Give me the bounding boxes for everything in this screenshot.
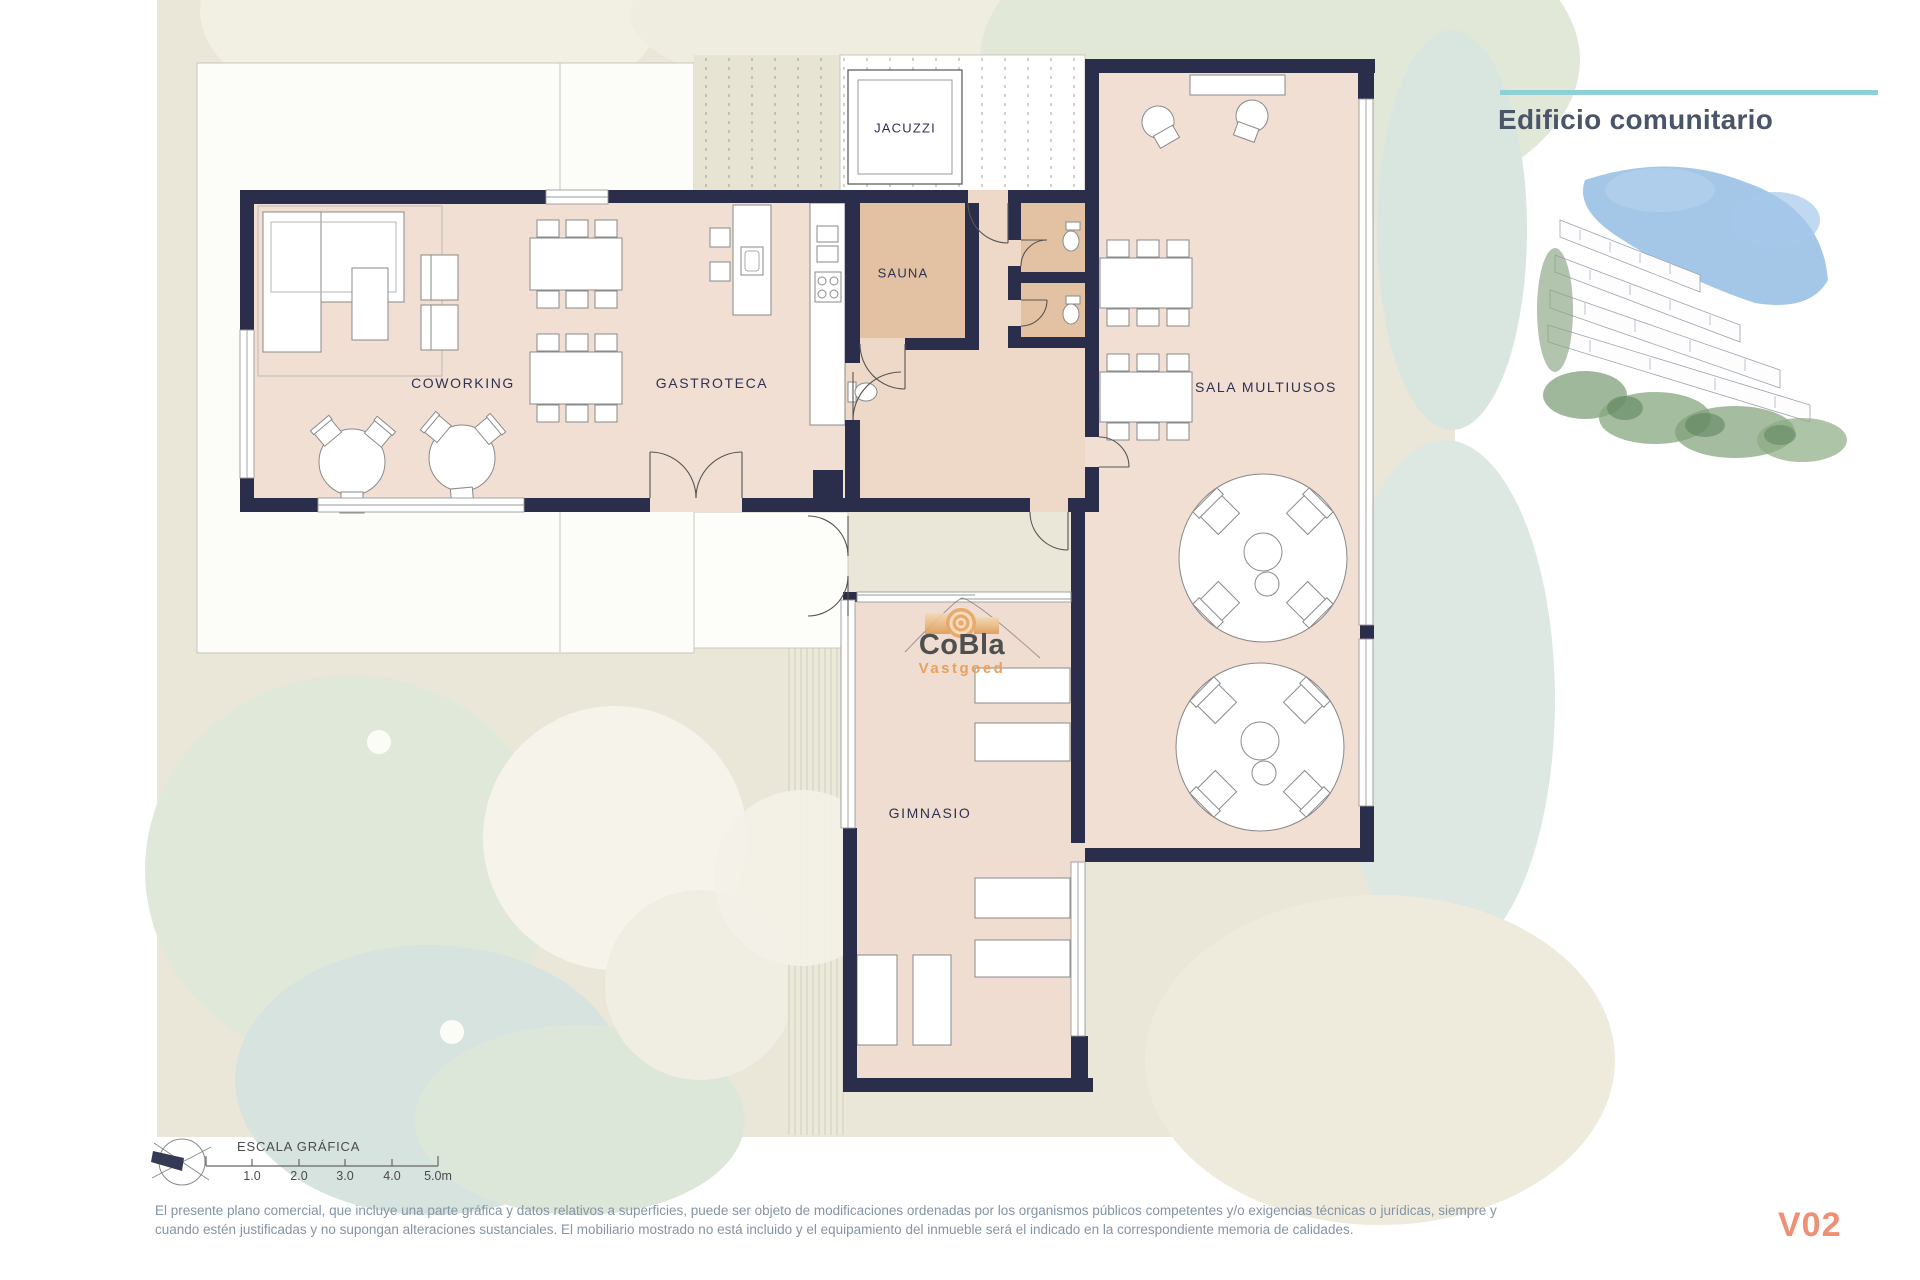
version-badge: V02 bbox=[1778, 1206, 1842, 1245]
table-six bbox=[530, 220, 622, 308]
lounge-circle bbox=[1179, 474, 1347, 642]
page-title: Edificio comunitario bbox=[1498, 104, 1773, 136]
room-label-sala-multiusos: SALA MULTIUSOS bbox=[1195, 379, 1337, 395]
scale-tick: 4.0 bbox=[370, 1169, 414, 1183]
room-label-gastroteca: GASTROTECA bbox=[656, 375, 768, 391]
pergola-strip bbox=[694, 55, 840, 192]
compass-icon bbox=[151, 1139, 211, 1185]
table-six bbox=[1100, 354, 1192, 440]
disclaimer-line-2: cuando estén justificadas y no supongan … bbox=[155, 1221, 1500, 1240]
room-label-gimnasio: GIMNASIO bbox=[889, 805, 972, 821]
sofa bbox=[263, 212, 321, 352]
armchair bbox=[421, 305, 458, 350]
table-six bbox=[1100, 240, 1192, 326]
watermark-cobla: CoBla bbox=[888, 629, 1036, 662]
console bbox=[1190, 75, 1285, 95]
kitchen-counter bbox=[810, 203, 845, 425]
toilet bbox=[1063, 296, 1080, 324]
room-label-jacuzzi: JACUZZI bbox=[874, 121, 936, 136]
watermark-vastgoed: Vastgoed bbox=[888, 660, 1036, 677]
accent-rule bbox=[1500, 90, 1878, 95]
room-label-sauna: SAUNA bbox=[878, 266, 929, 281]
table-six bbox=[530, 334, 622, 422]
room-label-coworking: COWORKING bbox=[411, 375, 515, 391]
scale-label: ESCALA GRÁFICA bbox=[237, 1139, 360, 1154]
coffee-table bbox=[352, 268, 388, 340]
scale-tick: 2.0 bbox=[277, 1169, 321, 1183]
disclaimer-line-1: El presente plano comercial, que incluye… bbox=[155, 1202, 1500, 1221]
lounge-circle bbox=[1176, 663, 1344, 831]
floor-plan-page: JACUZZI SAUNA COWORKING GASTROTECA SALA … bbox=[0, 0, 1920, 1280]
entrance-vestibule bbox=[694, 512, 848, 648]
scale-tick: 1.0 bbox=[230, 1169, 274, 1183]
building-illustration bbox=[1537, 166, 1847, 462]
scale-tick: 3.0 bbox=[323, 1169, 367, 1183]
toilet bbox=[1063, 222, 1080, 251]
scale-tick: 5.0m bbox=[416, 1169, 460, 1183]
armchair bbox=[421, 255, 458, 300]
